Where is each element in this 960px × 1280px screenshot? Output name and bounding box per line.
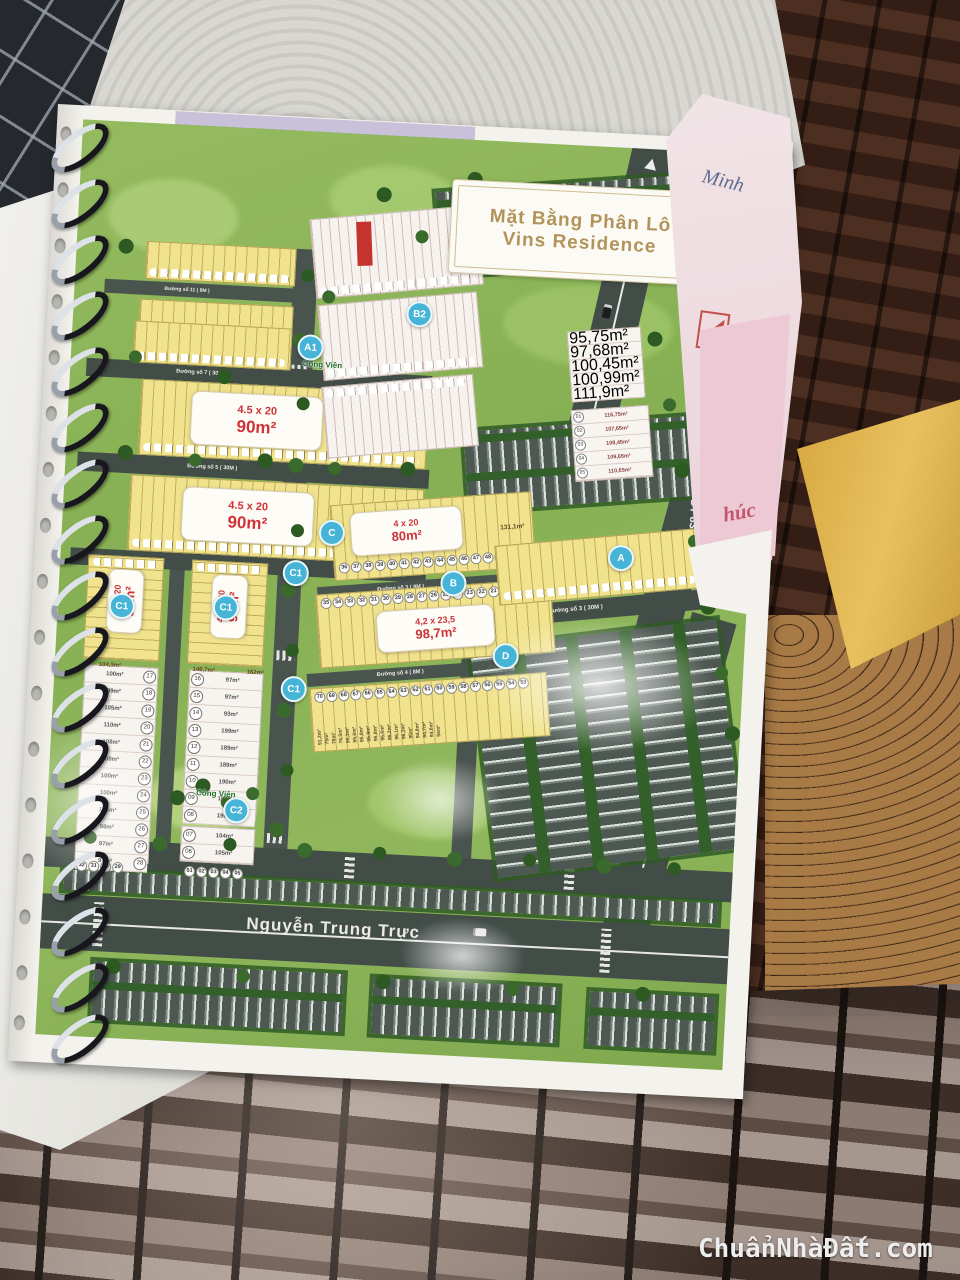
plan-title-line2: Vins Residence <box>502 228 657 258</box>
marker-a1: A1 <box>297 334 324 361</box>
lot-area: 97m² <box>203 693 260 702</box>
lot-number: 57 <box>470 681 482 693</box>
area-note: 162m² <box>246 670 264 677</box>
lot-area: 189m² <box>200 744 257 753</box>
lot-number: 47 <box>470 553 482 565</box>
lot-area: 105m² <box>195 849 252 858</box>
lot-number: 10 <box>185 774 199 788</box>
lot-number: 20 <box>140 721 154 735</box>
lot-number: 68 <box>338 690 350 702</box>
road-label: Đường số 4 ( 8M ) <box>377 669 424 678</box>
lot-number: 34 <box>332 597 344 609</box>
lot-number: 43 <box>422 556 434 568</box>
lot-number: 44 <box>434 555 446 567</box>
lot-number: 42 <box>410 557 422 569</box>
lot-number: 69 <box>326 691 338 703</box>
lot-number: 04 <box>576 453 588 465</box>
lot-number: 02 <box>196 866 208 878</box>
measure-value: 107,65m² <box>586 423 648 433</box>
lot-number: 67 <box>350 689 362 701</box>
marker-c1: C1 <box>280 675 307 702</box>
site-plan-map: ĐI ĐT 830 ĐT 833B ĐI ĐT 830B <box>35 119 770 1070</box>
lot-number: 02 <box>574 425 586 437</box>
area-note: 131,1m² <box>500 523 525 532</box>
lot-number: 33 <box>344 596 356 608</box>
lot-number: 30 <box>380 593 392 605</box>
lot-number: 64 <box>386 687 398 699</box>
lot-number: 62 <box>410 685 422 697</box>
measure-value: 116,75m² <box>585 409 647 419</box>
lot-number: 63 <box>398 686 410 698</box>
lot-number: 22 <box>476 587 488 599</box>
lot-number: 03 <box>575 439 587 451</box>
lot-number: 28 <box>404 592 416 604</box>
lot-number: 37 <box>350 561 362 573</box>
lot-area: 199m² <box>201 727 258 736</box>
housing-strip <box>587 991 715 1051</box>
lot-number: 39 <box>374 560 386 572</box>
housing-strip <box>91 961 344 1032</box>
lot-number: 07 <box>183 828 197 842</box>
lot-number: 31 <box>368 594 380 606</box>
measure-value: 110,65m² <box>589 465 651 475</box>
photo-scene: ĐI ĐT 830 ĐT 833B ĐI ĐT 830B <box>0 0 960 1280</box>
measure-box-2: 01 116,75m² 02 107,65m² 03 108,45m² 04 1… <box>571 405 654 482</box>
lot-number: 38 <box>362 560 374 572</box>
lot-number: 01 <box>184 866 196 878</box>
lot-number: 48 <box>482 552 494 564</box>
lot-number: 06 <box>182 845 196 859</box>
lot-number: 14 <box>189 706 203 720</box>
road-label: Đường số 7 ( 30M ) <box>176 369 226 378</box>
lot-number: 36 <box>339 562 351 574</box>
lot-number: 65 <box>374 687 386 699</box>
lot-number: 61 <box>422 684 434 696</box>
lot-number: 41 <box>398 558 410 570</box>
lot-number: 15 <box>190 689 204 703</box>
lot-number: 70 <box>314 692 326 704</box>
lot-area: 190m² <box>199 778 256 787</box>
lot-number: 32 <box>356 595 368 607</box>
lot-number: 58 <box>458 681 470 693</box>
lot-area: 189m² <box>199 761 256 770</box>
measure-list: 01 116,75m² 02 107,65m² 03 108,45m² 04 1… <box>572 406 653 481</box>
lot-number: 19 <box>141 704 155 718</box>
lot-number: 11 <box>186 757 200 771</box>
road-label: Đường số 11 ( 8M ) <box>164 286 210 294</box>
lot-number: 29 <box>392 593 404 605</box>
lot-number: 66 <box>362 688 374 700</box>
lot-area: 93m² <box>202 710 259 719</box>
lot-area: 100m² <box>86 670 143 679</box>
lot-number: 13 <box>188 723 202 737</box>
marker-c1: C1 <box>282 559 309 586</box>
lot-number: 60 <box>434 683 446 695</box>
lot-number: 05 <box>577 467 589 479</box>
lot-list: 16 97m² 15 97m² 14 93m² 13 199m² 12 189m… <box>183 671 263 828</box>
lot-number: 17 <box>143 670 157 684</box>
area-note: 104,3m² <box>99 662 122 669</box>
measure-value: 108,45m² <box>587 437 649 447</box>
highlighted-red-lot <box>356 221 373 265</box>
lot-number: 08 <box>184 808 198 822</box>
lot-number: 27 <box>416 591 428 603</box>
measure-list: 95,75m²97,68m²100,45m²100,99m²111,9m² <box>568 328 645 403</box>
handwriting: Minh <box>700 165 747 198</box>
lot-number: 59 <box>446 682 458 694</box>
lot-number: 29 <box>112 862 124 874</box>
lot-column-b2: 07 104m² 06 105m² <box>180 825 256 865</box>
lot-number: 40 <box>386 559 398 571</box>
road-label: Nguyễn Trung Trực <box>246 914 421 943</box>
area-note: 146,7m² <box>192 667 215 674</box>
plan-title-line1: Mặt Bằng Phân Lô <box>489 206 672 237</box>
lot-number: 26 <box>428 590 440 602</box>
car <box>602 304 613 319</box>
lot-number: 23 <box>464 588 476 600</box>
lot-number: 46 <box>458 554 470 566</box>
measure-box-1: 95,75m²97,68m²100,45m²100,99m²111,9m² <box>567 327 646 402</box>
handwriting: húc <box>721 497 758 527</box>
lot-area-strip: 91,3m²75m²76m²76,5m²95,3m²95,6m²95,8m²95… <box>315 697 442 746</box>
lot-number: 04 <box>220 868 232 880</box>
lot-number: 05 <box>232 868 244 880</box>
lot-number: 03 <box>208 867 220 879</box>
lot-list: 07 104m² 06 105m² <box>181 826 255 864</box>
lot-number: 45 <box>446 555 458 567</box>
lot-number: 18 <box>142 687 156 701</box>
road-arrow-up <box>644 157 658 170</box>
lot-area: 104m² <box>196 832 253 841</box>
lot-number: 01 <box>573 411 585 423</box>
road-label: Đường số 3 ( 30M ) <box>548 604 603 615</box>
lot-number: 16 <box>191 672 205 686</box>
lot-number: 12 <box>187 740 201 754</box>
watermark: ChuẩnNhàĐất.com <box>698 1234 933 1264</box>
road-label: Đường số 5 ( 30M ) <box>187 463 237 472</box>
measure-value: 109,65m² <box>588 451 650 461</box>
lot-area: 97m² <box>204 676 261 685</box>
lot-number: 35 <box>320 598 332 610</box>
